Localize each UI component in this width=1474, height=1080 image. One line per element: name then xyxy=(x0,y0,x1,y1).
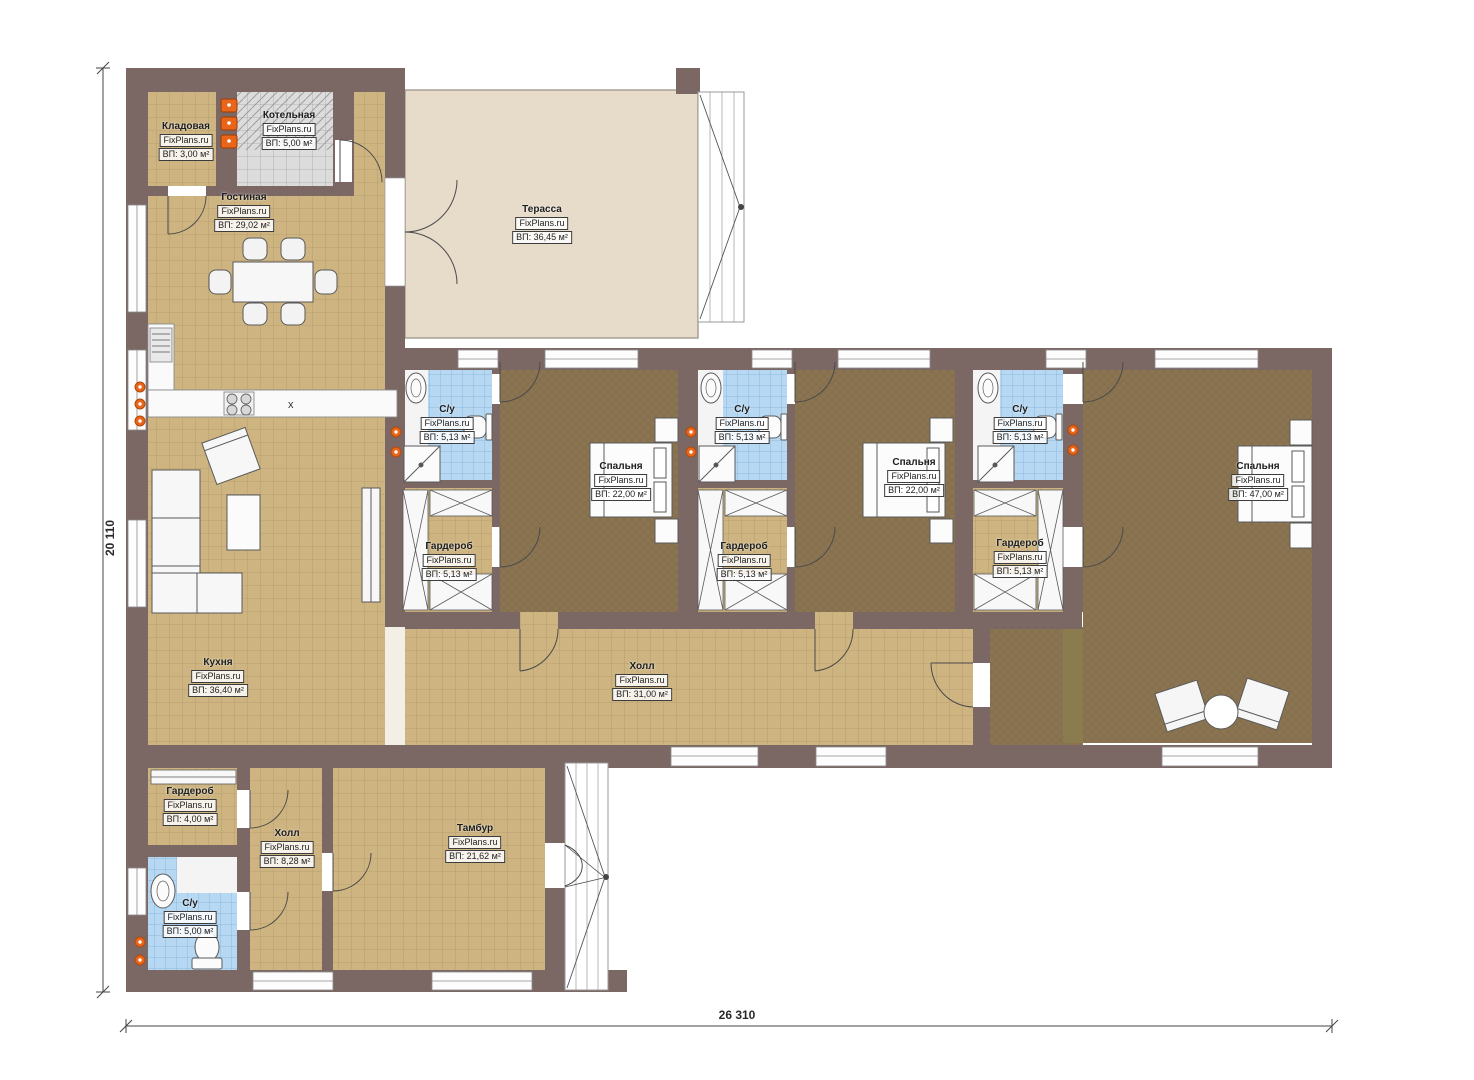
floor-plan-page: x xyxy=(0,0,1474,1080)
dimension-width: 26 310 xyxy=(719,1008,756,1022)
dimension-height: 20 110 xyxy=(103,520,117,556)
svg-text:x: x xyxy=(288,399,294,411)
floor-plan-drawing: x xyxy=(0,0,1474,1080)
entrance-glazed-panel xyxy=(565,763,609,990)
terrace-sliding-panel xyxy=(698,92,744,322)
terrace-floor xyxy=(405,90,698,338)
boiler-room-floor xyxy=(237,92,333,189)
boiler-units xyxy=(221,99,237,148)
